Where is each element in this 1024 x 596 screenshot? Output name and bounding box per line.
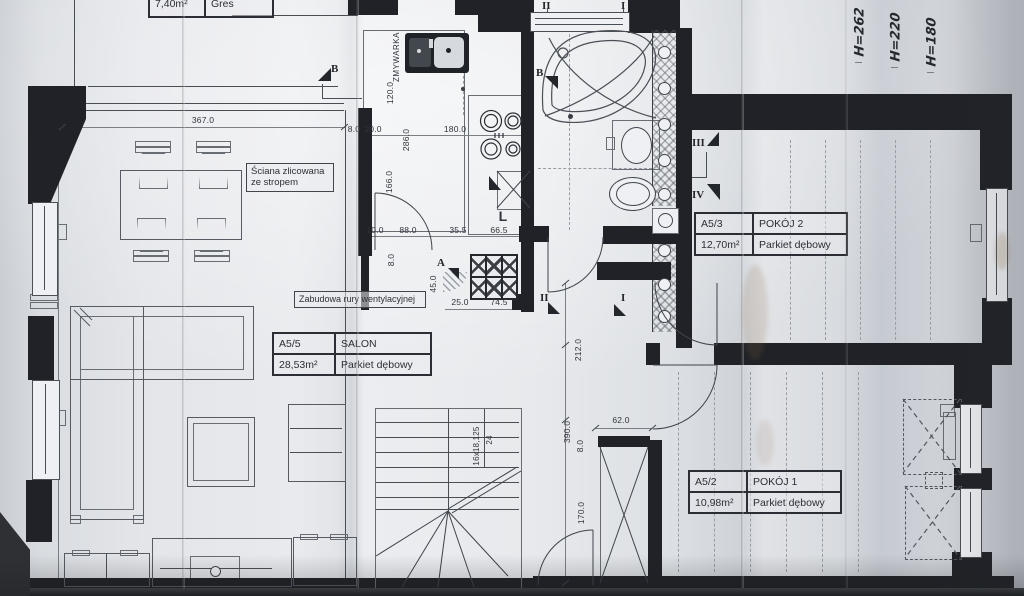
salon-area: 28,53m²: [273, 354, 335, 375]
dimension: 166.0: [385, 171, 394, 193]
dimension: 120.0: [386, 82, 395, 104]
paper-crease: [182, 0, 185, 596]
dimension: 10.0: [366, 226, 383, 235]
room2-area: 12,70m²: [695, 234, 753, 255]
stairs-count: 24: [486, 435, 494, 444]
dimension: 180.0: [444, 125, 466, 134]
door-arcs: [375, 193, 717, 585]
paper-crease: [356, 0, 359, 596]
paper-stain: [756, 420, 774, 466]
kitchen-area: 7,40m²: [149, 0, 205, 17]
wall-note: Ściana zlicowana ze stropem: [246, 163, 334, 192]
dimension: 286.0: [402, 129, 411, 151]
paper-stain: [995, 232, 1009, 270]
room1-name: POKÓJ 1: [747, 471, 841, 492]
bathtub: [542, 31, 656, 123]
room1-info-table: A5/2 POKÓJ 1 10,98m² Parkiet dębowy: [688, 470, 842, 514]
room1-area: 10,98m²: [689, 492, 747, 513]
l-mark: L: [499, 209, 508, 223]
section-triangle: [548, 302, 560, 314]
section-marker: B: [331, 64, 338, 75]
section-triangle: [707, 132, 719, 146]
salon-id: A5/5: [273, 333, 335, 354]
hob-burners: [481, 111, 522, 160]
dimension: 62.0: [612, 416, 629, 425]
plan-linework: [0, 0, 1024, 596]
room2-floor: Parkiet dębowy: [753, 234, 847, 255]
sofa-corner-mark: [74, 308, 92, 326]
section-triangle: [545, 76, 558, 89]
dimension: 35.5: [449, 226, 466, 235]
section-marker: A: [437, 258, 445, 269]
appliance-label: ZMYWARKA: [393, 32, 401, 82]
section-marker: II: [542, 1, 551, 12]
room2-info-table: A5/3 POKÓJ 2 12,70m² Parkiet dębowy: [694, 212, 848, 256]
floor-plan-photo: 7,40m² Gres II I B 367.0: [0, 0, 1024, 596]
dimension: 20.0: [364, 125, 381, 134]
dimension: 390.0: [563, 421, 572, 443]
room2-id: A5/3: [695, 213, 753, 234]
section-marker: III: [692, 138, 705, 149]
dimension: 25.0: [451, 298, 468, 307]
dimension: 8.0: [387, 254, 396, 266]
handwritten-height: H=220: [889, 12, 904, 62]
paper-crease: [845, 0, 848, 596]
room1-id: A5/2: [689, 471, 747, 492]
dimension: 367.0: [192, 116, 214, 125]
dimension: 170.0: [577, 502, 586, 524]
salon-info-table: A5/5 SALON 28,53m² Parkiet dębowy: [272, 332, 432, 376]
section-marker: B: [536, 68, 543, 79]
photo-background-edge: [0, 588, 1024, 596]
section-marker: IV: [692, 190, 704, 201]
dimension: 88.0: [399, 226, 416, 235]
section-marker: I: [621, 1, 625, 12]
shaft-cross: [600, 447, 648, 583]
dimension: 45.0: [429, 275, 438, 292]
section-triangle: [707, 184, 720, 200]
section-triangle: [448, 268, 459, 279]
kitchen-floor: Gres: [205, 0, 273, 17]
dimension: 212.0: [574, 339, 583, 361]
handwritten-height: H=180: [925, 17, 940, 67]
stairs-treads: 16x18,125: [473, 426, 481, 465]
dimension: 8.0: [576, 440, 585, 452]
kitchen-info-table: 7,40m² Gres: [148, 0, 274, 18]
section-triangle: [614, 304, 626, 316]
room2-name: POKÓJ 2: [753, 213, 847, 234]
salon-floor: Parkiet dębowy: [335, 354, 431, 375]
dimension: 74.5: [490, 298, 507, 307]
handwritten-height: H=262: [853, 7, 868, 57]
section-marker: I: [621, 293, 625, 304]
fridge-cross: [497, 171, 530, 208]
wardrobe-cross: [903, 399, 960, 558]
vent-note: Zabudowa rury wentylacyjnej: [294, 291, 426, 308]
stairs-lines: [376, 467, 521, 587]
room1-floor: Parkiet dębowy: [747, 492, 841, 513]
section-triangle: [318, 68, 331, 81]
salon-name: SALON: [335, 333, 431, 354]
dimension: 66.5: [490, 226, 507, 235]
section-triangle: [489, 176, 501, 190]
paper-stain: [742, 265, 768, 360]
